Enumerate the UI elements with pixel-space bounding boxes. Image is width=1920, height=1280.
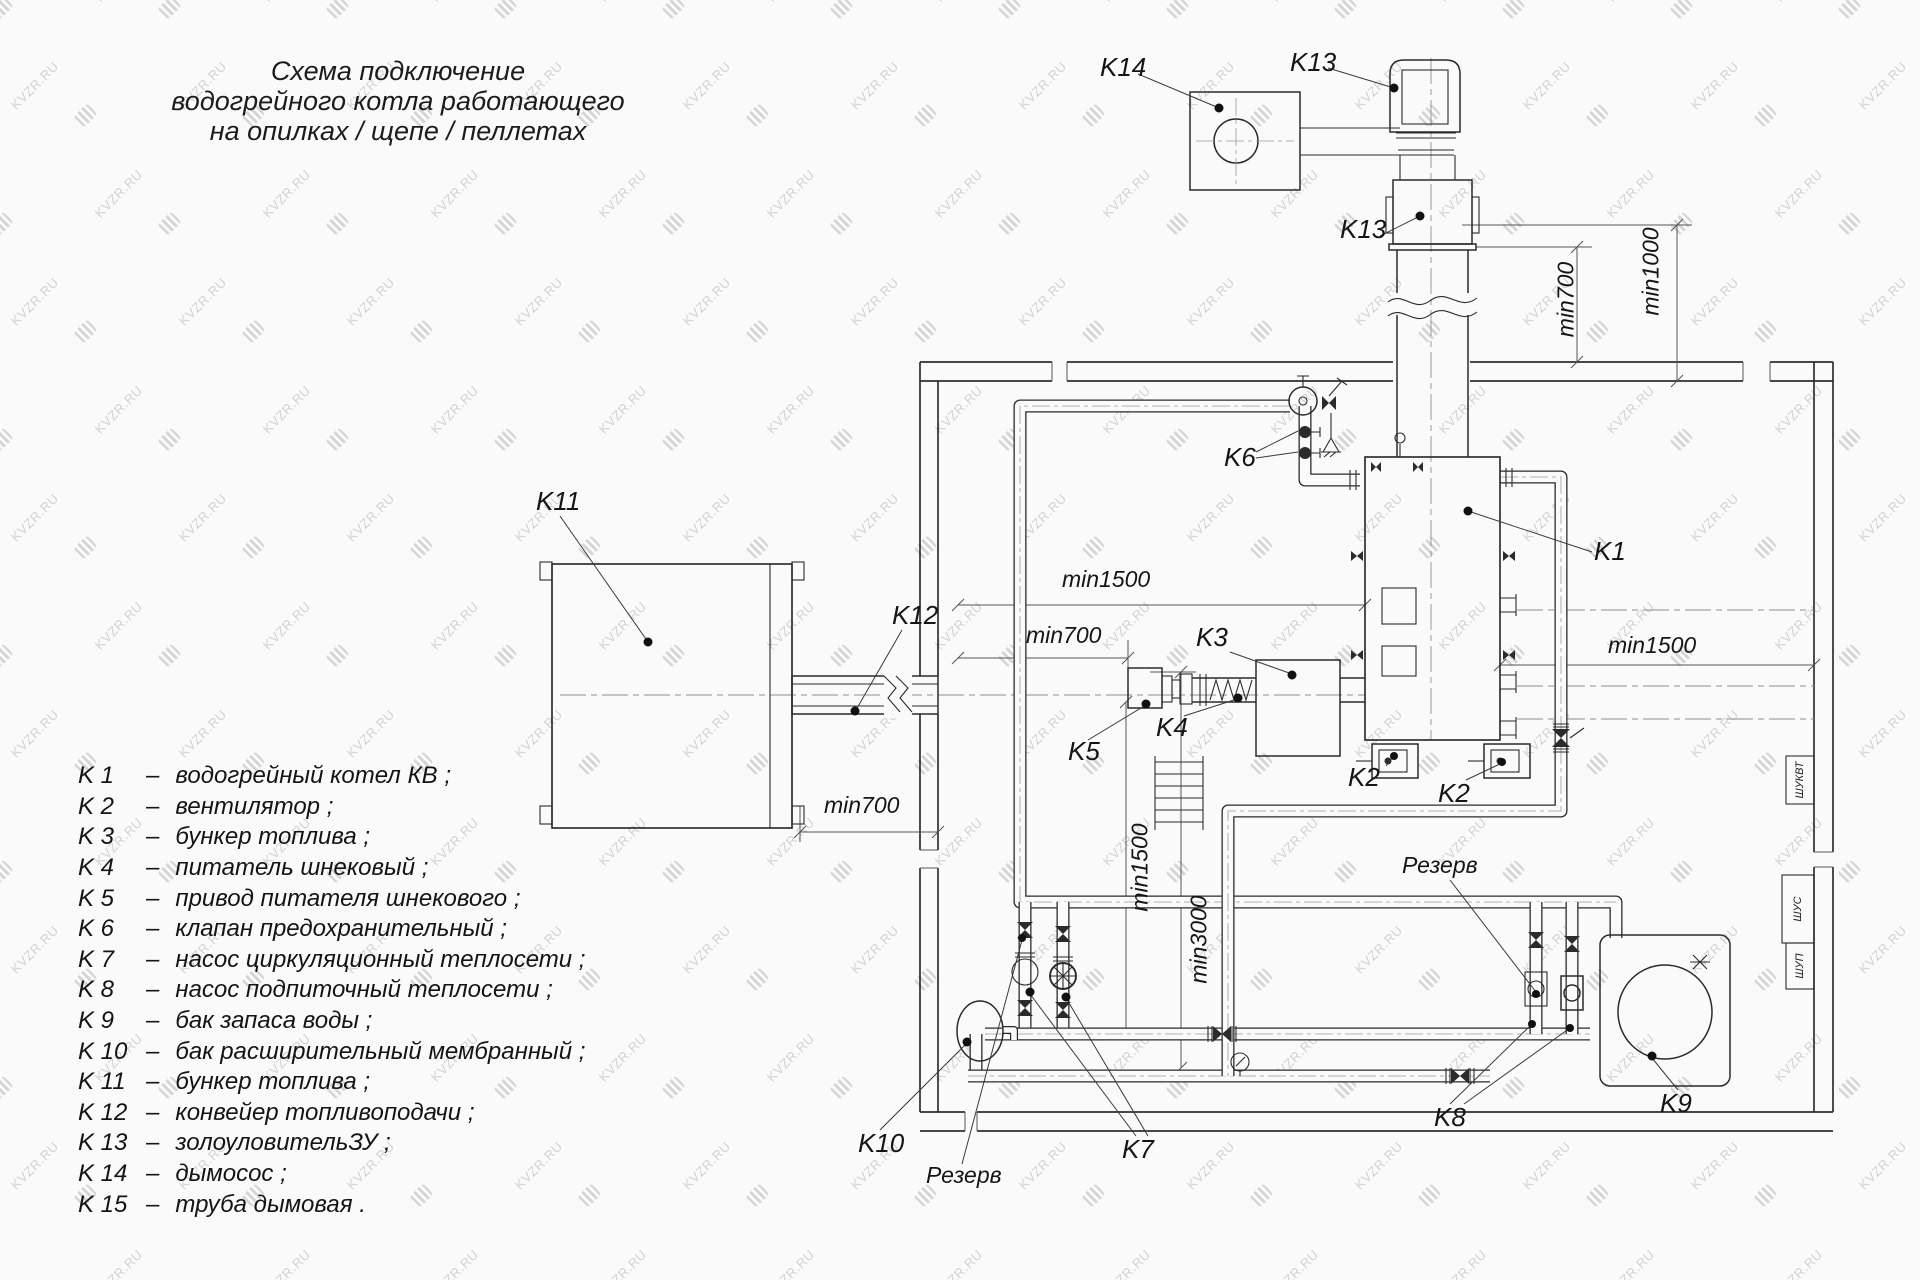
legend-item-7: K 7–насос циркуляционный теплосети ;	[78, 945, 585, 976]
label-k1: K1	[1594, 536, 1626, 567]
label-k9: K9	[1660, 1088, 1692, 1119]
dim-min1500-vertical: min1500	[1127, 798, 1154, 938]
legend-item-14: K 14–дымосос ;	[78, 1159, 585, 1190]
dim-min1000-right: min1000	[1638, 202, 1665, 342]
cabinet-label-shukvt: ШУКВТ	[1794, 735, 1806, 825]
label-k14: K14	[1100, 52, 1146, 83]
title-line-2: водогрейного котла работающего	[158, 86, 638, 116]
legend-item-6: K 6–клапан предохранительный ;	[78, 914, 585, 945]
legend-item-9: K 9–бак запаса воды ;	[78, 1006, 585, 1037]
label-k2-left: K2	[1348, 762, 1380, 793]
dim-min700-left: min700	[824, 792, 899, 819]
drawing-title: Схема подключение водогрейного котла раб…	[158, 56, 638, 147]
label-reserve-left: Резерв	[926, 1162, 1002, 1189]
label-k7: K7	[1122, 1134, 1154, 1165]
callout-leaders	[560, 68, 1678, 1164]
label-k4: K4	[1156, 712, 1188, 743]
dim-min1500-right: min1500	[1608, 632, 1696, 659]
dim-min700-right: min700	[1553, 230, 1580, 370]
k3-fuel-bunker	[1256, 660, 1340, 756]
legend-item-3: K 3–бункер топлива ;	[78, 822, 585, 853]
legend-item-4: K 4–питатель шнековый ;	[78, 853, 585, 884]
k8-pump-columns	[1536, 902, 1572, 1034]
legend-item-13: K 13–золоуловительЗУ ;	[78, 1128, 585, 1159]
drawing-sheet: KVZR.RUKVZR.RUKVZR.RUKVZR.RUKVZR.RUKVZR.…	[0, 0, 1920, 1280]
label-k10: K10	[858, 1128, 904, 1159]
label-k8: K8	[1434, 1102, 1466, 1133]
k13-ash-collector	[1386, 60, 1479, 457]
legend-item-15: K 15–труба дымовая .	[78, 1189, 585, 1220]
label-k11: K11	[536, 486, 580, 517]
title-line-3: на опилках / щепе / пеллетах	[158, 116, 638, 146]
k4-screw-feeder	[1192, 674, 1365, 706]
label-k3: K3	[1196, 622, 1228, 653]
legend-list: K 1–водогрейный котел КВ ;K 2–вентилятор…	[78, 761, 585, 1220]
label-k6: K6	[1224, 442, 1256, 473]
legend-item-5: K 5–привод питателя шнекового ;	[78, 883, 585, 914]
dim-min1500-center: min1500	[1062, 566, 1150, 593]
legend-item-11: K 11–бункер топлива ;	[78, 1067, 585, 1098]
k6-riser-pipe	[1305, 406, 1360, 480]
cabinet-label-shup: ШУП	[1794, 921, 1806, 1011]
legend-item-1: K 1–водогрейный котел КВ ;	[78, 761, 585, 792]
k5-feeder-drive	[1128, 668, 1192, 708]
boiler-right-riser	[1228, 477, 1561, 1076]
title-line-1: Схема подключение	[158, 56, 638, 86]
ladder	[1155, 756, 1203, 830]
legend-item-10: K 10–бак расширительный мембранный ;	[78, 1036, 585, 1067]
label-k13-mid: K13	[1340, 214, 1386, 245]
label-k2-right: K2	[1438, 778, 1470, 809]
k1-boiler	[1351, 433, 1516, 740]
label-reserve-right: Резерв	[1402, 852, 1478, 879]
dim-min700-center: min700	[1026, 622, 1101, 649]
k9-water-tank	[1600, 935, 1730, 1086]
dim-min3000-vertical: min3000	[1186, 870, 1213, 1010]
label-k5: K5	[1068, 736, 1100, 767]
legend-item-12: K 12–конвейер топливоподачи ;	[78, 1098, 585, 1129]
legend-item-8: K 8–насос подпиточный теплосети ;	[78, 975, 585, 1006]
label-k12: K12	[892, 600, 938, 631]
legend-item-2: K 2–вентилятор ;	[78, 792, 585, 823]
label-k13-top: K13	[1290, 47, 1336, 78]
